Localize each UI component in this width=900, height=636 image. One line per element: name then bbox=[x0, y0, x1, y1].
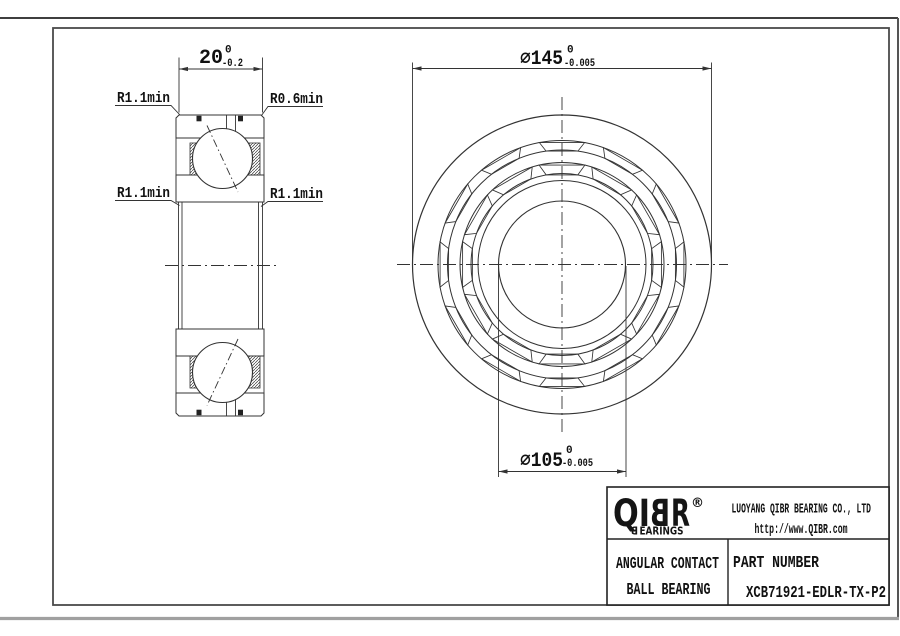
seal-anchor-mark bbox=[197, 410, 202, 416]
section-view bbox=[165, 115, 279, 416]
company-website: http://www.QIBR.com bbox=[755, 523, 848, 538]
width-value: 20 bbox=[199, 47, 223, 70]
seal-anchor-mark bbox=[197, 116, 202, 122]
arrowhead-icon bbox=[499, 469, 508, 473]
callout-top-left: R1.1min bbox=[117, 90, 170, 107]
arrowhead-icon bbox=[617, 469, 626, 473]
cage-pocket bbox=[603, 355, 642, 382]
arrowhead-icon bbox=[179, 67, 188, 71]
part-number-label: PART NUMBER bbox=[733, 553, 819, 572]
cage-pocket bbox=[445, 184, 472, 223]
company-name: LUOYANG QIBR BEARING CO., LTD bbox=[732, 503, 872, 518]
product-type-line2: BALL BEARING bbox=[627, 580, 711, 599]
tagline-mirrored-b: B bbox=[631, 525, 638, 538]
arrowhead-icon bbox=[703, 66, 712, 70]
front-view bbox=[397, 97, 728, 435]
cage-pocket bbox=[445, 306, 472, 345]
technical-drawing: 20 0 -0.2 R1.1min R0.6min R1.1min R1.1mi… bbox=[0, 0, 900, 636]
seal-anchor-mark bbox=[238, 116, 243, 122]
width-lower-tol: -0.2 bbox=[222, 58, 243, 70]
od-lower-tol: -0.005 bbox=[564, 58, 595, 70]
cage-pocket bbox=[652, 184, 679, 223]
title-block: QI B R ® B EARINGS LUOYANG QIBR BEARING … bbox=[607, 487, 889, 605]
cage-pocket bbox=[652, 306, 679, 345]
product-type-line1: ANGULAR CONTACT bbox=[616, 554, 719, 573]
od-value: ⌀145 bbox=[520, 48, 563, 71]
cage-pocket bbox=[603, 148, 642, 175]
arrowhead-icon bbox=[254, 67, 263, 71]
width-dimension: 20 0 -0.2 bbox=[179, 45, 263, 113]
registered-mark: ® bbox=[691, 496, 704, 511]
od-upper-tol: 0 bbox=[567, 45, 574, 57]
tagline-rest: EARINGS bbox=[640, 525, 684, 538]
bore-upper-tol: 0 bbox=[566, 445, 573, 457]
arrowhead-icon bbox=[413, 66, 422, 70]
cage-pocket bbox=[482, 148, 521, 175]
drawing-sheet: 20 0 -0.2 R1.1min R0.6min R1.1min R1.1mi… bbox=[0, 0, 900, 636]
cage-pocket bbox=[482, 355, 521, 382]
bore-value: ⌀105 bbox=[520, 450, 563, 473]
seal-anchor-mark bbox=[238, 410, 243, 416]
bore-lower-tol: -0.005 bbox=[562, 458, 593, 470]
width-upper-tol: 0 bbox=[225, 45, 232, 57]
callout-bottom-left: R1.1min bbox=[117, 185, 170, 202]
callout-bottom-right: R1.1min bbox=[270, 186, 323, 203]
callout-top-right: R0.6min bbox=[270, 91, 323, 108]
bore-dimension: ⌀105 0 -0.005 bbox=[499, 266, 627, 477]
part-number-value: XCB71921-EDLR-TX-P2 bbox=[746, 584, 886, 603]
